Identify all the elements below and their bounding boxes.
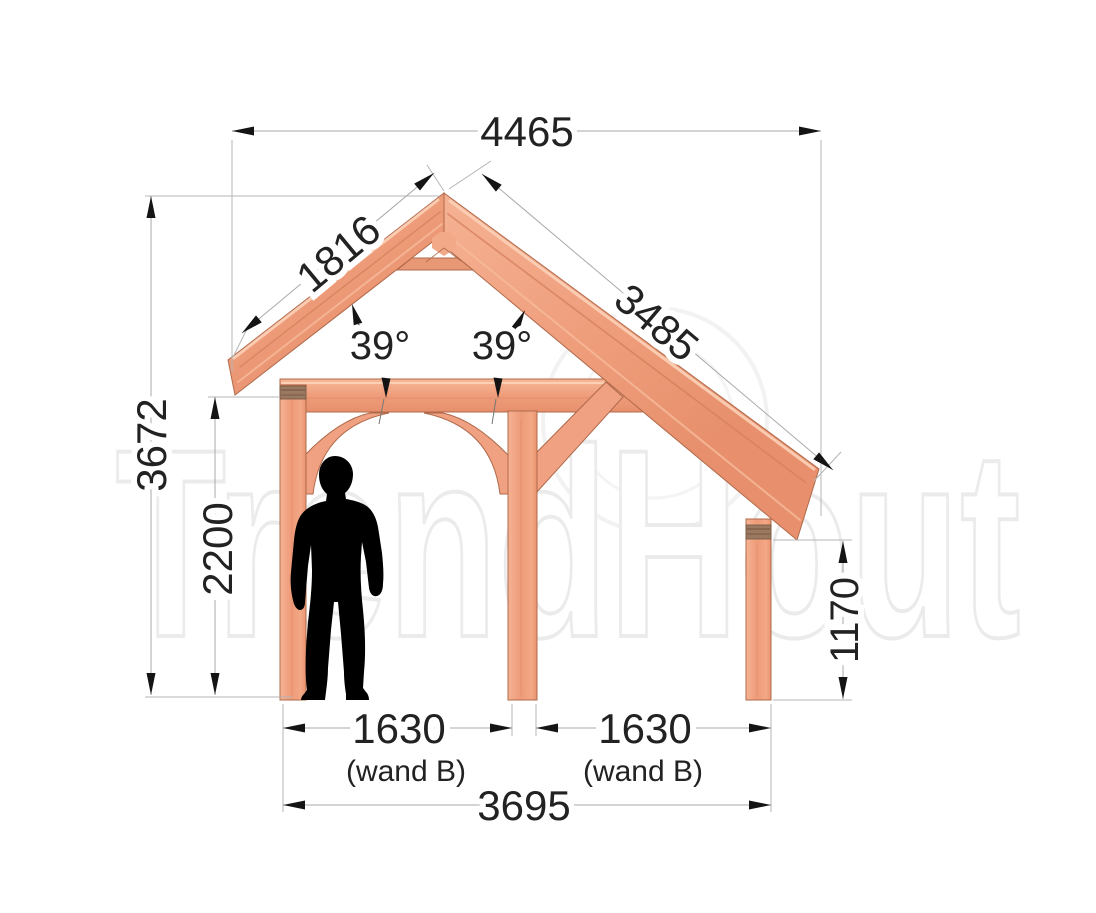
middle-post <box>508 411 537 700</box>
dim-clear-height-value: 2200 <box>194 502 241 595</box>
left-rafter <box>228 193 444 395</box>
dim-top-width: 4465 <box>232 108 821 155</box>
right-post-wall-plate <box>746 525 771 539</box>
right-post <box>746 519 771 700</box>
dim-total-width-value: 3695 <box>477 782 570 829</box>
dim-total-height-value: 3672 <box>128 398 175 491</box>
dim-bay-right-value: 1630 <box>598 705 691 752</box>
angle-right-value: 39° <box>472 324 533 368</box>
dim-bay-left: 1630 (wand B) <box>283 705 512 788</box>
drawing-canvas: TrendHout <box>0 0 1096 913</box>
dim-bay-left-value: 1630 <box>352 705 445 752</box>
dim-bay-left-note: (wand B) <box>346 755 466 788</box>
dim-total-width: 3695 <box>283 782 771 829</box>
left-post-wall-plate <box>280 386 306 399</box>
angle-left-value: 39° <box>350 324 411 368</box>
dim-bay-right: 1630 (wand B) <box>536 705 771 788</box>
dim-bay-right-note: (wand B) <box>583 755 703 788</box>
ext-rafterR-ridge <box>449 161 491 189</box>
dim-right-height-value: 1170 <box>823 577 867 663</box>
dim-top-width-value: 4465 <box>480 108 573 155</box>
timber-frame-drawing: TrendHout <box>0 0 1096 913</box>
